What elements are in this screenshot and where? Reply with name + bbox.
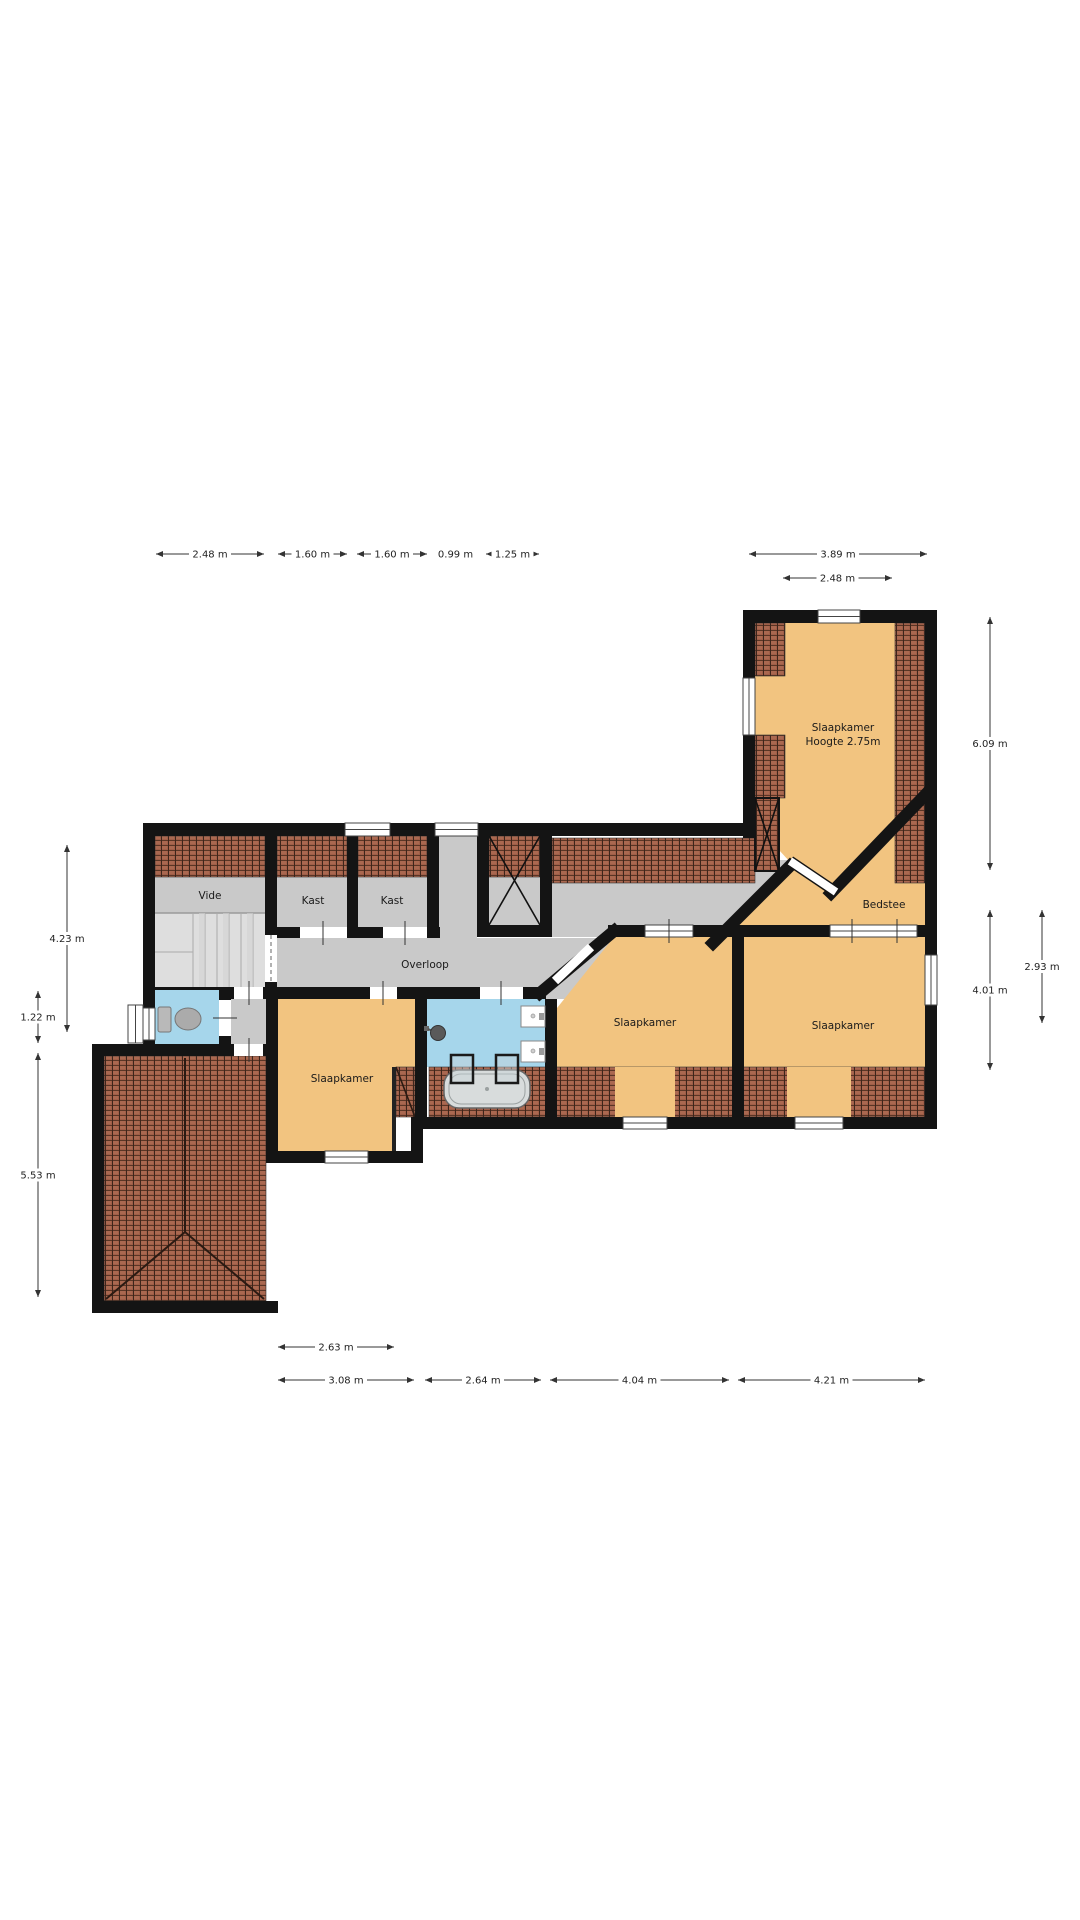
bedroom-mid-neck (615, 1067, 675, 1117)
dim-top-4: 0.99 m (435, 548, 477, 561)
dimension-label: 3.08 m (328, 1376, 363, 1387)
wing-shaft-column (755, 798, 779, 871)
room-label-wing-height: Hoogte 2.75m (806, 736, 881, 748)
dimension-label: 1.60 m (295, 550, 330, 561)
dimension-label: 2.64 m (465, 1376, 500, 1387)
dim-right-3: 2.93 m (1021, 910, 1063, 1023)
niche-floor (439, 836, 477, 938)
dim-top-3: 1.60 m (357, 548, 427, 561)
roof-strip-wing-left-b (755, 735, 785, 798)
roof-strip-vide (155, 836, 265, 877)
dimension-label: 3.89 m (820, 550, 855, 561)
dimension-label: 1.22 m (20, 1013, 55, 1024)
room-label-kast1: Kast (302, 895, 325, 907)
dim-top-6: 3.89 m (749, 548, 927, 561)
dimension-label: 0.99 m (438, 550, 473, 561)
dim-left-1: 4.23 m (46, 845, 88, 1032)
dimension-label: 1.60 m (374, 550, 409, 561)
roof-strip-wing-right (895, 623, 925, 883)
dim-top-5: 1.25 m (486, 548, 539, 561)
floor-plan: Vide Kast Kast Overloop Slaapkamer Hoogt… (0, 0, 1080, 1920)
dim-left-2: 1.22 m (17, 991, 59, 1043)
dimension-label: 4.23 m (49, 934, 84, 945)
stairs (155, 913, 265, 987)
roof-strip-kast1 (277, 836, 347, 877)
roof-strip-shaft (489, 836, 540, 877)
dim-bottom-4: 4.04 m (550, 1374, 729, 1387)
roof-strip-wing-left-a (755, 623, 785, 676)
dimension-label: 4.04 m (622, 1376, 657, 1387)
dim-bottom-2: 3.08 m (278, 1374, 414, 1387)
room-label-bedroom-left: Slaapkamer (311, 1073, 374, 1085)
dim-bottom-1: 2.63 m (278, 1341, 394, 1354)
dimension-label: 6.09 m (972, 739, 1007, 750)
room-label-kast2: Kast (381, 895, 404, 907)
dimension-label: 4.01 m (972, 986, 1007, 997)
room-label-bedstee: Bedstee (863, 899, 906, 911)
dim-bottom-3: 2.64 m (425, 1374, 541, 1387)
dimension-label: 2.93 m (1024, 962, 1059, 973)
room-label-vide: Vide (199, 890, 222, 902)
vestibule-floor (231, 999, 266, 1044)
dimension-label: 2.48 m (192, 550, 227, 561)
dimension-label: 1.25 m (495, 550, 530, 561)
dim-bottom-5: 4.21 m (738, 1374, 925, 1387)
dimension-label: 4.21 m (814, 1376, 849, 1387)
roof-strip-kast2 (358, 836, 427, 877)
dimension-label: 5.53 m (20, 1171, 55, 1182)
dimension-label: 2.48 m (820, 574, 855, 585)
room-label-overloop: Overloop (401, 959, 449, 971)
dimension-label: 2.63 m (318, 1343, 353, 1354)
dim-right-2: 4.01 m (969, 910, 1011, 1070)
dim-top-1: 2.48 m (156, 548, 264, 561)
shaft-floor (489, 877, 540, 925)
roof-band-corridor (552, 838, 755, 883)
dim-top-2: 1.60 m (278, 548, 347, 561)
dim-right-1: 6.09 m (969, 617, 1011, 870)
dim-top-7: 2.48 m (783, 572, 892, 585)
room-label-bedroom-right: Slaapkamer (812, 1020, 875, 1032)
room-label-wing: Slaapkamer (812, 722, 875, 734)
bedroom-right-neck (787, 1067, 851, 1117)
dim-left-3: 5.53 m (17, 1053, 59, 1297)
room-label-bedroom-mid: Slaapkamer (614, 1017, 677, 1029)
